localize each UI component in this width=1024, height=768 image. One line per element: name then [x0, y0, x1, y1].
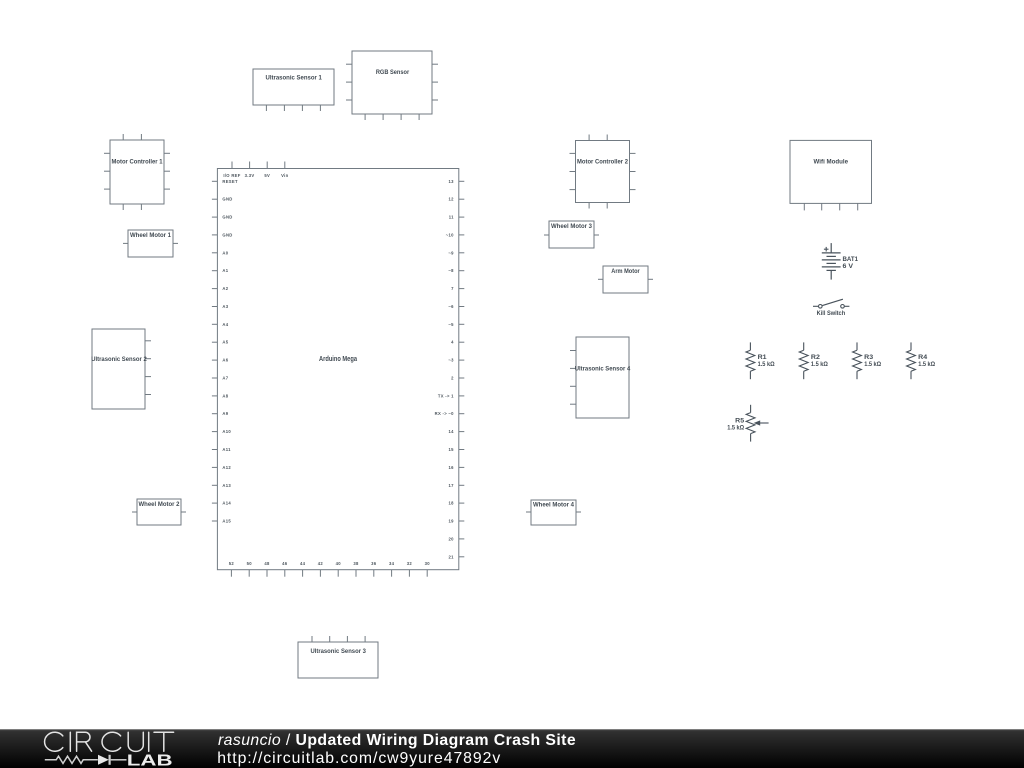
svg-text:1.5 kΩ: 1.5 kΩ — [864, 361, 881, 368]
svg-text:A2: A2 — [222, 286, 228, 291]
svg-text:Arduino Mega: Arduino Mega — [319, 356, 357, 363]
svg-text:http://circuitlab.com/cw9yure4: http://circuitlab.com/cw9yure47892v — [217, 750, 501, 767]
svg-text:17: 17 — [449, 483, 455, 488]
svg-text:13: 13 — [449, 179, 455, 184]
svg-text:50: 50 — [247, 561, 253, 566]
svg-text:7: 7 — [451, 286, 454, 291]
svg-text:Ultrasonic Sensor 4: Ultrasonic Sensor 4 — [575, 365, 631, 372]
svg-text:12: 12 — [449, 197, 455, 202]
svg-text:A0: A0 — [222, 250, 228, 255]
svg-text:rasuncio / Updated Wiring Diag: rasuncio / Updated Wiring Diagram Crash … — [218, 732, 576, 749]
svg-text:~6: ~6 — [448, 304, 454, 309]
svg-text:48: 48 — [264, 561, 270, 566]
svg-text:42: 42 — [318, 561, 324, 566]
svg-text:20: 20 — [449, 536, 455, 541]
svg-text:A11: A11 — [222, 447, 231, 452]
svg-text:52: 52 — [229, 561, 235, 566]
svg-text:Wifi Module: Wifi Module — [814, 159, 849, 166]
svg-text:~9: ~9 — [448, 250, 454, 255]
svg-text:~3: ~3 — [448, 358, 454, 363]
svg-text:A3: A3 — [222, 304, 228, 309]
svg-text:A12: A12 — [222, 465, 231, 470]
svg-text:RX -> ~0: RX -> ~0 — [435, 411, 455, 416]
svg-text:Wheel Motor 2: Wheel Motor 2 — [139, 501, 180, 508]
svg-text:14: 14 — [449, 429, 455, 434]
svg-text:A9: A9 — [222, 411, 228, 416]
svg-text:A6: A6 — [222, 358, 228, 363]
svg-text:46: 46 — [282, 561, 288, 566]
svg-text:Wheel Motor 1: Wheel Motor 1 — [130, 232, 171, 239]
svg-text:Ultrasonic Sensor 1: Ultrasonic Sensor 1 — [266, 75, 323, 82]
svg-text:18: 18 — [449, 501, 455, 506]
svg-text:~8: ~8 — [448, 268, 454, 273]
svg-text:GND: GND — [222, 232, 232, 237]
svg-text:34: 34 — [389, 561, 395, 566]
svg-text:Arm Motor: Arm Motor — [611, 268, 640, 275]
svg-text:A8: A8 — [222, 393, 228, 398]
svg-text:44: 44 — [300, 561, 306, 566]
svg-text:5V: 5V — [264, 173, 270, 178]
svg-text:~10: ~10 — [446, 232, 454, 237]
svg-text:GND: GND — [222, 197, 232, 202]
svg-text:RGB Sensor: RGB Sensor — [376, 69, 410, 76]
svg-text:Wheel Motor 4: Wheel Motor 4 — [533, 502, 574, 509]
svg-text:BAT1: BAT1 — [843, 256, 859, 263]
svg-text:TX -> 1: TX -> 1 — [438, 393, 454, 398]
svg-text:R5: R5 — [735, 418, 744, 425]
svg-text:16: 16 — [449, 465, 455, 470]
svg-text:A13: A13 — [222, 483, 231, 488]
svg-text:36: 36 — [371, 561, 377, 566]
svg-text:38: 38 — [353, 561, 359, 566]
svg-text:15: 15 — [449, 447, 455, 452]
svg-text:40: 40 — [336, 561, 342, 566]
svg-text:Ultrasonic Sensor 2: Ultrasonic Sensor 2 — [91, 356, 147, 363]
svg-text:A7: A7 — [222, 376, 228, 381]
svg-text:A10: A10 — [222, 429, 231, 434]
svg-text:2: 2 — [451, 376, 454, 381]
svg-text:Motor Controller 2: Motor Controller 2 — [577, 158, 628, 165]
svg-text:A5: A5 — [222, 340, 228, 345]
svg-text:32: 32 — [407, 561, 413, 566]
svg-text:I/O REF: I/O REF — [223, 173, 240, 178]
svg-text:3.3V: 3.3V — [245, 173, 255, 178]
svg-text:1.5 kΩ: 1.5 kΩ — [918, 361, 935, 368]
svg-text:21: 21 — [449, 554, 455, 559]
svg-text:Ultrasonic Sensor 3: Ultrasonic Sensor 3 — [310, 648, 366, 655]
svg-text:Vin: Vin — [281, 173, 288, 178]
svg-text:6 V: 6 V — [843, 263, 854, 270]
svg-text:19: 19 — [449, 519, 455, 524]
svg-text:1.5 kΩ: 1.5 kΩ — [811, 361, 828, 368]
svg-text:RESET: RESET — [222, 179, 238, 184]
svg-text:~5: ~5 — [448, 322, 454, 327]
svg-text:A4: A4 — [222, 322, 228, 327]
svg-text:11: 11 — [449, 215, 454, 220]
svg-text:Kill Switch: Kill Switch — [817, 310, 846, 317]
svg-text:4: 4 — [451, 340, 454, 345]
svg-text:Wheel Motor 3: Wheel Motor 3 — [551, 223, 592, 230]
svg-text:R2: R2 — [811, 354, 820, 361]
svg-text:1.5 kΩ: 1.5 kΩ — [758, 361, 775, 368]
svg-text:R3: R3 — [864, 354, 873, 361]
svg-text:A15: A15 — [222, 519, 231, 524]
svg-text:R1: R1 — [758, 354, 767, 361]
svg-text:1.5 kΩ: 1.5 kΩ — [727, 425, 744, 432]
svg-text:A1: A1 — [222, 268, 228, 273]
svg-text:GND: GND — [222, 215, 232, 220]
svg-text:A14: A14 — [222, 501, 231, 506]
svg-text:30: 30 — [425, 561, 431, 566]
svg-text:Motor Controller 1: Motor Controller 1 — [112, 158, 163, 165]
svg-text:R4: R4 — [918, 354, 927, 361]
svg-text:LAB: LAB — [127, 752, 173, 768]
